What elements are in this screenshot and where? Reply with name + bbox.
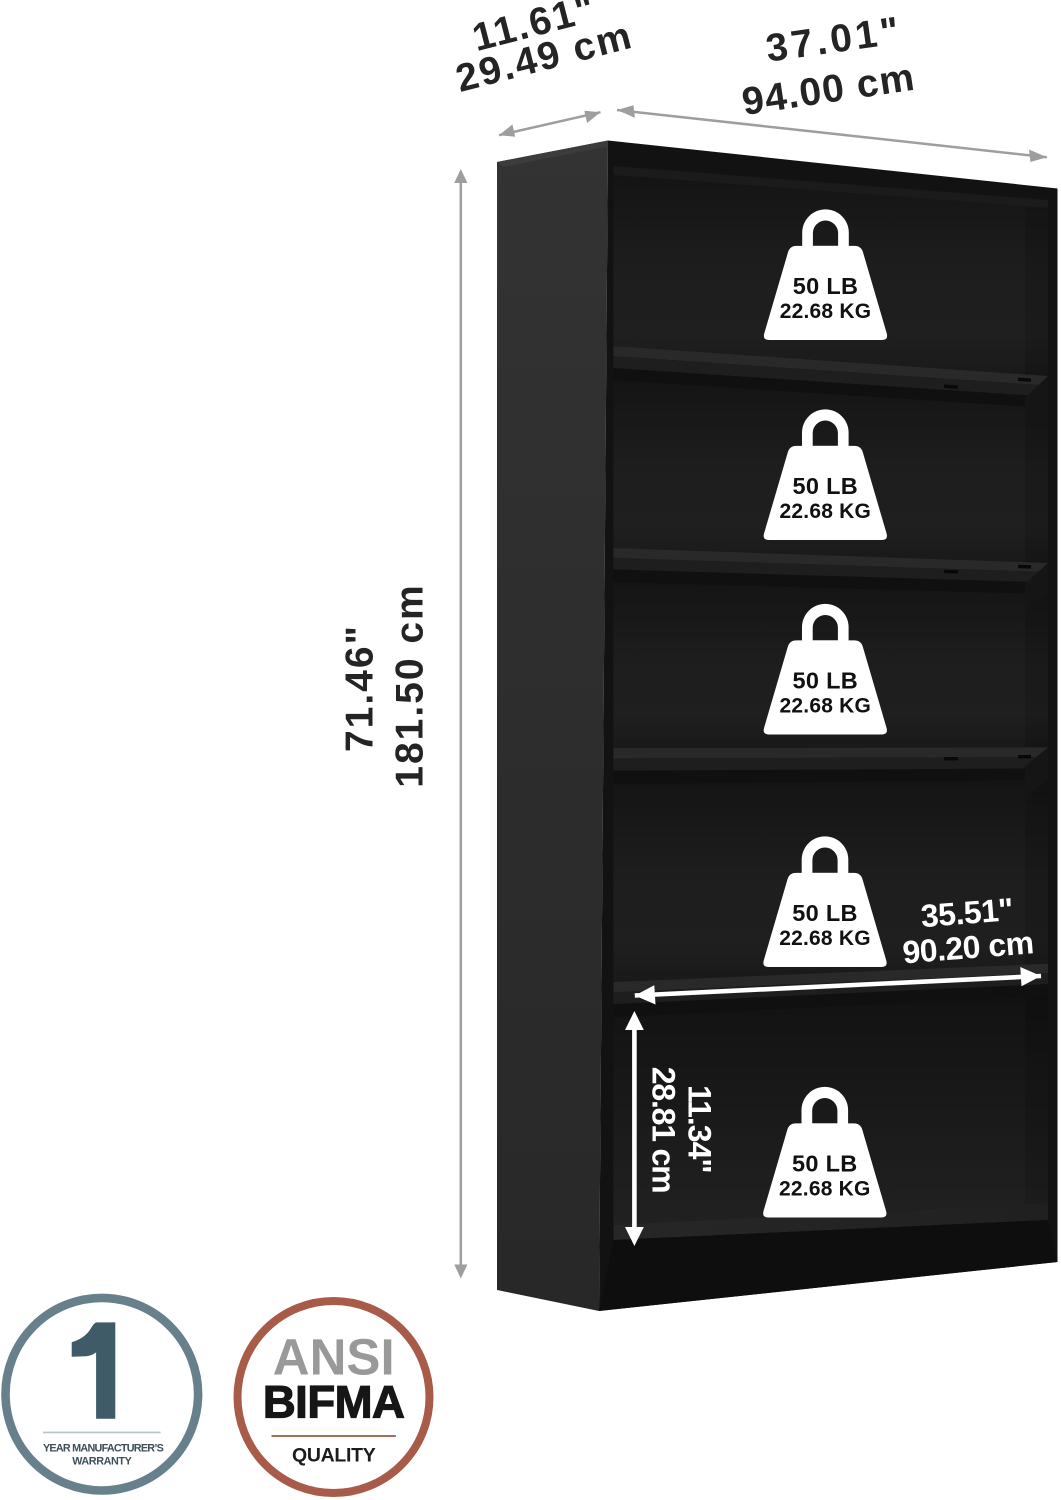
- svg-text:28.81 cm: 28.81 cm: [645, 1067, 681, 1193]
- svg-text:11.34": 11.34": [681, 1085, 717, 1172]
- svg-text:WARRANTY: WARRANTY: [72, 1455, 132, 1467]
- svg-text:YEAR MANUFACTURER’S: YEAR MANUFACTURER’S: [43, 1443, 164, 1455]
- svg-text:71.46": 71.46": [338, 624, 381, 752]
- svg-text:QUALITY: QUALITY: [292, 1445, 376, 1467]
- svg-text:181.50 cm: 181.50 cm: [388, 583, 431, 788]
- svg-text:BIFMA: BIFMA: [263, 1377, 405, 1428]
